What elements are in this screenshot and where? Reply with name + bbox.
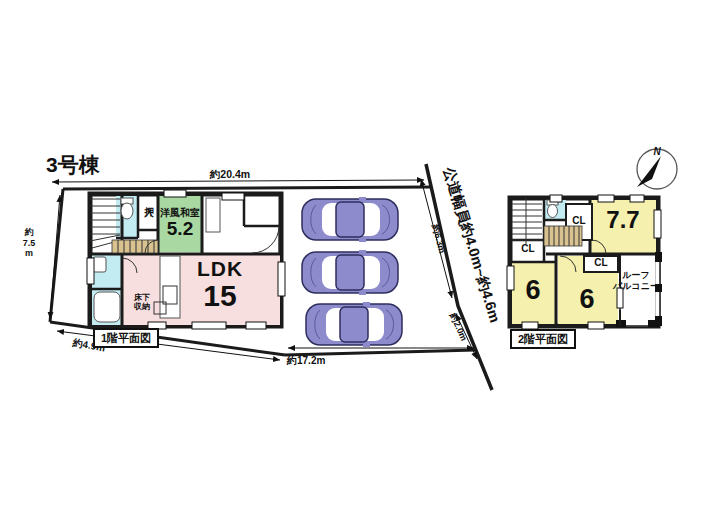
dim-left-l1: 約 — [17, 227, 41, 238]
dim-left-l2: 7.5 — [17, 238, 41, 249]
balcony-label: ルーフ バルコニー — [612, 270, 660, 292]
dim-left-l3: m — [17, 248, 41, 259]
toilet-bowl-icon — [121, 203, 133, 219]
wall-plate — [222, 193, 244, 200]
bathtub-icon — [94, 292, 120, 322]
underfloor-l2: 収納 — [131, 302, 153, 311]
floor1-caption: 1階平面図 — [93, 328, 159, 348]
dim-top: 約20.4m — [150, 168, 310, 182]
balcony-l1: ルーフ — [612, 270, 660, 281]
balcony-l2: バルコニー — [612, 281, 660, 292]
sink-icon — [93, 257, 106, 272]
toilet-bowl-icon-2f — [548, 205, 558, 218]
compass-north-label: N — [648, 146, 666, 157]
jroom-size: 5.2 — [156, 218, 204, 240]
closet-a-label: CL — [566, 215, 592, 226]
car-3 — [306, 302, 402, 347]
car-2 — [302, 250, 398, 295]
shoe-cabinet — [206, 198, 220, 232]
underfloor-label: 床下 収納 — [131, 293, 153, 311]
room77-size: 7.7 — [590, 206, 656, 234]
room6b-size: 6 — [556, 284, 618, 315]
dim-bottom: 約17.2m — [287, 354, 325, 368]
closet-c-label: CL — [584, 257, 618, 268]
ldk-label: LDK — [175, 257, 265, 281]
plan-title: 3号棟 — [46, 151, 100, 179]
underfloor-l1: 床下 — [131, 293, 153, 302]
ldk-size: 15 — [175, 279, 265, 313]
closet-b-label: CL — [512, 243, 544, 254]
dim-left: 約 7.5 m — [17, 227, 41, 259]
room6a-size: 6 — [510, 275, 556, 306]
floor2-caption: 2階平面図 — [510, 329, 576, 349]
car-1 — [302, 197, 398, 242]
floorplan-page: 3号棟 約20.4m 約 7.5 m 約4.9m 約17.2m 約6.3m 約2… — [0, 0, 705, 525]
